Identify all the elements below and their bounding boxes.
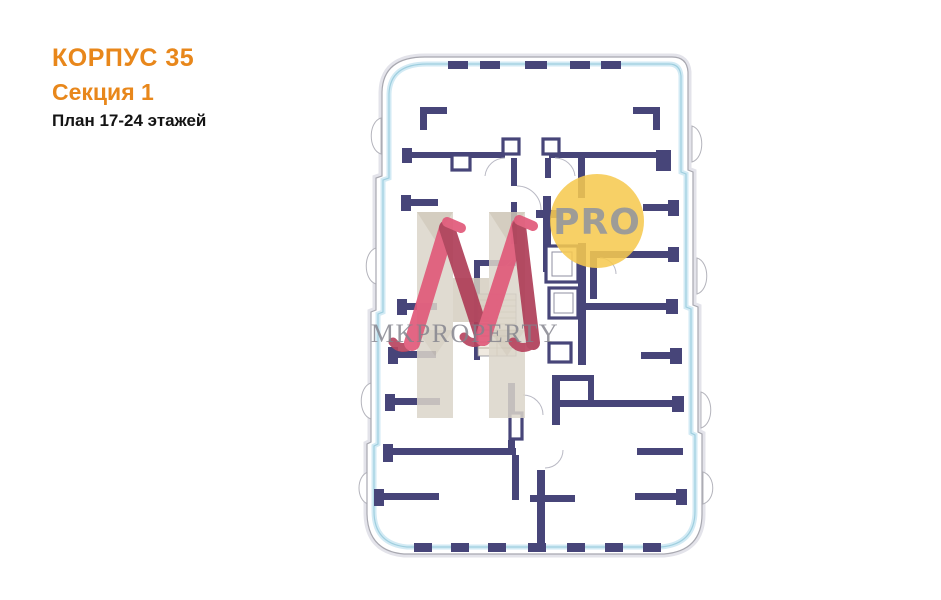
floor-plan: MKPROPERTY PRO [0, 0, 941, 600]
pro-badge: PRO [550, 174, 644, 268]
pro-badge-text: PRO [553, 202, 641, 243]
watermark-text: MKPROPERTY [371, 319, 559, 348]
page: КОРПУС 35 Секция 1 План 17-24 этажей [0, 0, 941, 600]
